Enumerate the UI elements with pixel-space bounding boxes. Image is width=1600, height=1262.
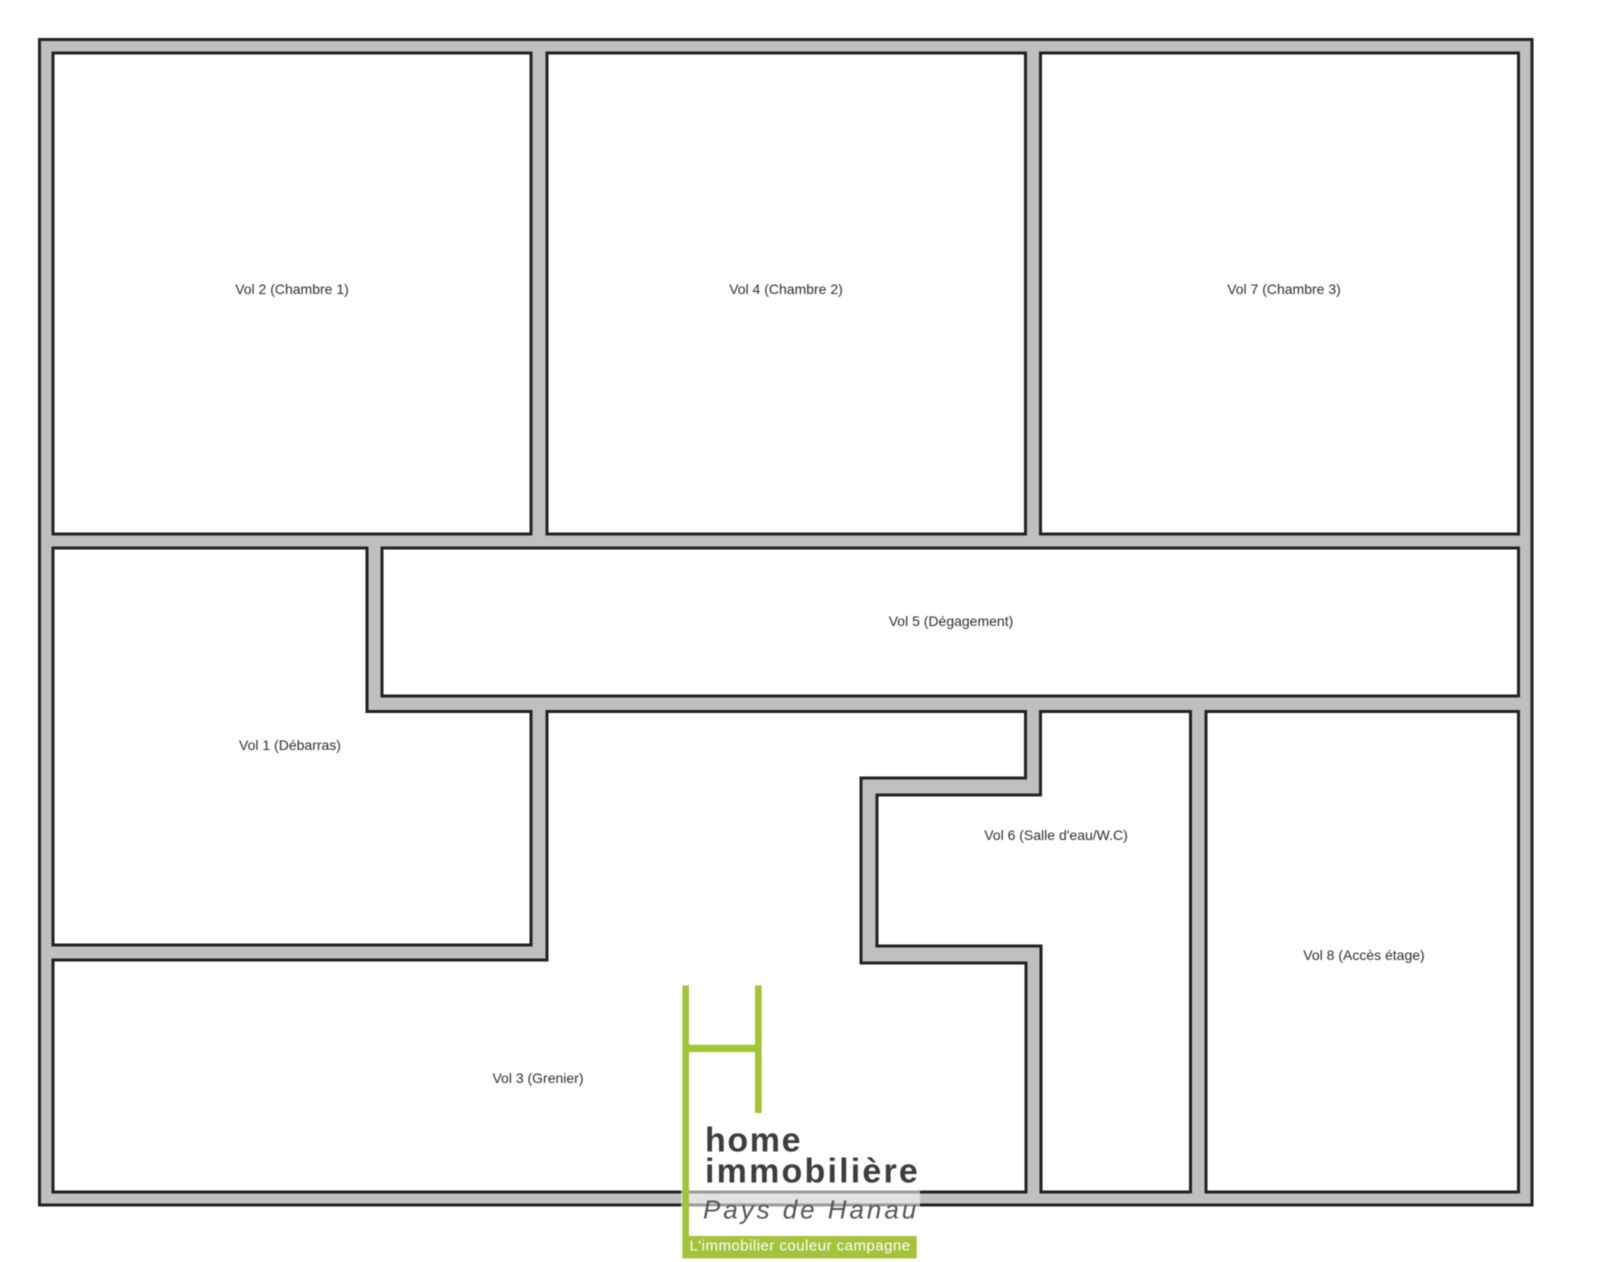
svg-text:Vol 2 (Chambre 1): Vol 2 (Chambre 1): [235, 281, 349, 297]
svg-text:Vol 6 (Salle d'eau/W.C): Vol 6 (Salle d'eau/W.C): [984, 827, 1128, 843]
svg-text:immobilière: immobilière: [705, 1152, 920, 1190]
svg-text:Vol 7 (Chambre 3): Vol 7 (Chambre 3): [1227, 281, 1341, 297]
svg-text:Vol 4 (Chambre 2): Vol 4 (Chambre 2): [729, 281, 843, 297]
svg-text:Vol 1 (Débarras): Vol 1 (Débarras): [239, 737, 341, 753]
svg-text:Vol 3 (Grenier): Vol 3 (Grenier): [492, 1070, 583, 1086]
svg-text:Pays de Hanau: Pays de Hanau: [703, 1194, 919, 1224]
svg-text:L'immobilier couleur campagne: L'immobilier couleur campagne: [690, 1238, 911, 1255]
svg-text:Vol 8 (Accès étage): Vol 8 (Accès étage): [1303, 947, 1424, 963]
svg-text:Vol 5 (Dégagement): Vol 5 (Dégagement): [889, 613, 1014, 629]
